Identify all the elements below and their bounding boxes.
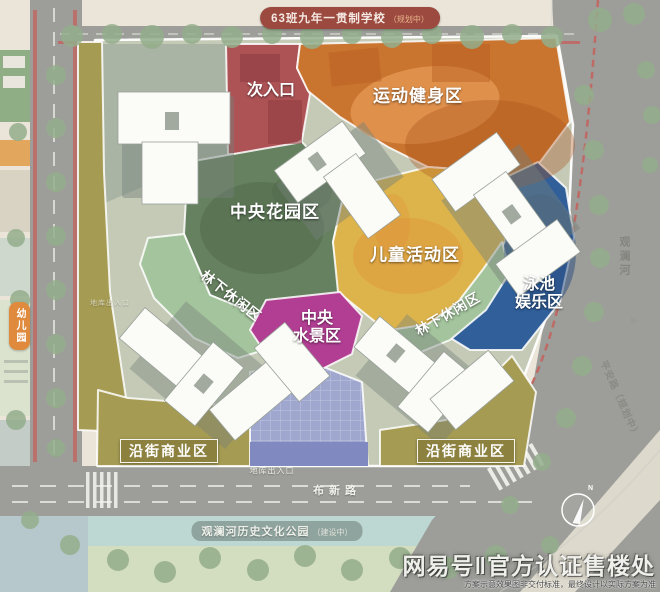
zone-label-commercial-right: 沿街商业区 xyxy=(417,439,515,463)
zone-label-pool-line1: 泳池 xyxy=(515,276,563,294)
building-cluster-a xyxy=(118,92,234,204)
school-badge-status: （规划中） xyxy=(389,14,429,25)
school-badge: 63班九年一贯制学校 （规划中） xyxy=(260,7,440,29)
watermark-disclaimer: 方案示意效果图非交付标准，最终设计以实际方案为准 xyxy=(464,579,656,590)
compass-north-label: N xyxy=(588,485,593,492)
zone-label-commercial-left: 沿街商业区 xyxy=(120,439,218,463)
road-label-buxin: 布新路 xyxy=(313,482,361,498)
zone-label-children: 儿童活动区 xyxy=(370,245,460,264)
site-plan: 63班九年一贯制学校 （规划中） 幼儿园 观澜河历史文化公园 （建设中） 次入口… xyxy=(0,0,660,592)
watermark-brand: 网易号‖官方认证售楼处 xyxy=(403,547,655,581)
garage-entrance-label-west: 地库出入口 xyxy=(90,298,130,308)
compass-icon xyxy=(562,494,594,526)
zone-label-pool: 泳池 娱乐区 xyxy=(515,276,563,312)
park-badge-status: （建设中） xyxy=(313,527,353,538)
zone-label-waterscape-line1: 中央 xyxy=(293,310,341,328)
kindergarten-badge: 幼儿园 xyxy=(9,302,30,350)
garage-entrance-label-south: 地库出入口 xyxy=(250,466,295,477)
school-badge-label: 63班九年一贯制学校 xyxy=(271,10,386,26)
zone-label-pool-line2: 娱乐区 xyxy=(515,294,563,312)
park-badge: 观澜河历史文化公园 （建设中） xyxy=(192,521,363,541)
zone-label-waterscape-line2: 水景区 xyxy=(293,328,341,346)
zone-label-secondary-entrance: 次入口 xyxy=(247,82,295,100)
river-label: 观澜河 xyxy=(616,236,632,278)
zone-label-sports: 运动健身区 xyxy=(373,86,463,105)
park-badge-label: 观澜河历史文化公园 xyxy=(202,523,310,539)
zone-label-garden: 中央花园区 xyxy=(230,202,320,221)
river-flow-arrow-icon: ▶ xyxy=(631,315,638,326)
zone-label-waterscape: 中央 水景区 xyxy=(293,310,341,346)
